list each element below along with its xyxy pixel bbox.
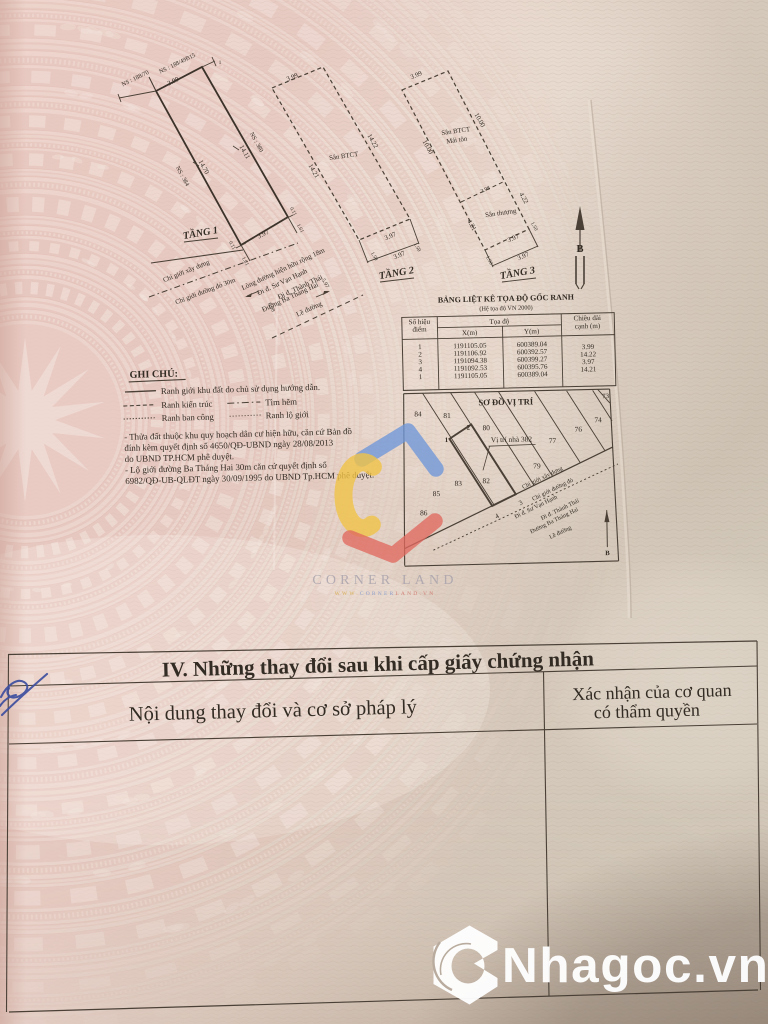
svg-text:1: 1 [419, 373, 423, 381]
svg-text:X(m): X(m) [462, 329, 478, 337]
svg-text:(Hệ tọa độ VN 2000): (Hệ tọa độ VN 2000) [479, 304, 533, 312]
svg-text:600389.04: 600389.04 [517, 370, 548, 379]
svg-text:85: 85 [433, 489, 441, 498]
svg-text:GHI CHÚ:: GHI CHÚ: [129, 368, 178, 381]
svg-text:Tìm hẽm: Tìm hẽm [265, 396, 297, 407]
svg-text:CORNER LAND: CORNER LAND [312, 573, 457, 588]
svg-text:điểm: điểm [412, 325, 427, 333]
svg-text:có thẩm quyền: có thẩm quyền [594, 700, 700, 723]
svg-text:86: 86 [420, 508, 428, 517]
svg-text:83: 83 [454, 479, 462, 488]
svg-text:SƠ ĐỒ VỊ TRÍ: SƠ ĐỒ VỊ TRÍ [478, 396, 534, 407]
svg-text:81: 81 [443, 411, 451, 420]
svg-text:84: 84 [414, 409, 422, 418]
svg-text:1191105.05: 1191105.05 [454, 372, 488, 381]
svg-text:Ranh lộ giới: Ranh lộ giới [265, 409, 309, 420]
svg-text:Ranh kiến trúc: Ranh kiến trúc [161, 399, 213, 410]
svg-text:Ranh ban công: Ranh ban công [162, 412, 215, 423]
svg-text:B: B [576, 244, 583, 255]
svg-text:Y(m): Y(m) [524, 327, 540, 335]
svg-text:cạnh (m): cạnh (m) [575, 322, 601, 331]
svg-text:B: B [605, 550, 610, 557]
svg-text:Nhagoc.vn: Nhagoc.vn [502, 938, 768, 993]
svg-text:WWW.CORNERLAND.VN: WWW.CORNERLAND.VN [335, 591, 436, 597]
svg-text:80: 80 [482, 423, 490, 432]
svg-text:82: 82 [482, 476, 490, 485]
svg-text:14.21: 14.21 [580, 365, 597, 373]
svg-text:74: 74 [594, 415, 602, 424]
svg-text:Vị trí nhà 382: Vị trí nhà 382 [491, 434, 533, 444]
svg-text:79: 79 [533, 461, 541, 470]
svg-text:76: 76 [575, 425, 583, 434]
svg-text:73: 73 [602, 393, 609, 400]
svg-text:Tọa độ: Tọa độ [489, 317, 510, 325]
svg-text:77: 77 [549, 436, 557, 445]
